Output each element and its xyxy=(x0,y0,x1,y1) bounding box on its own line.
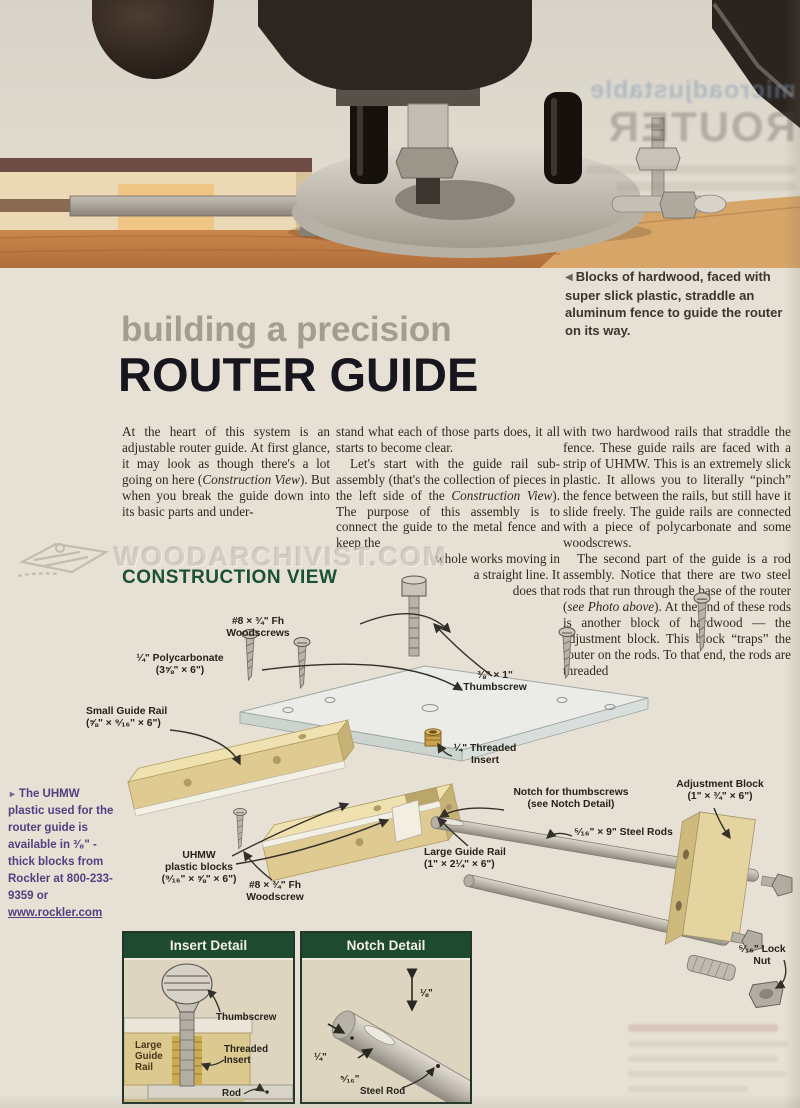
label-notch: Notch for thumbscrews (see Notch Detail) xyxy=(492,787,650,811)
insert-label-thumbscrew: Thumbscrew xyxy=(216,1012,292,1023)
label-small-guide-rail: Small Guide Rail (⅝" × ⁹⁄₁₆" × 6") xyxy=(86,706,216,730)
bleedthrough-textline xyxy=(628,1056,778,1062)
bleedthrough-heading xyxy=(628,1024,778,1032)
paragraph-italic: Construction View xyxy=(202,472,300,487)
sidebar-note: ►The UHMW plastic used for the router gu… xyxy=(8,786,114,922)
page-bleedthrough-bottom xyxy=(628,1024,793,1101)
magazine-page: microadjustable ROUTER ◀Blocks of hardwo… xyxy=(0,0,800,1108)
notch-detail-box: Notch Detail xyxy=(300,931,472,1104)
label-woodscrews: #8 × ¾" Fh Woodscrews xyxy=(192,616,324,640)
notch-detail-diagram: ⅛" ¼" ⁵⁄₁₆" Steel Rod xyxy=(302,960,470,1102)
page-title: ROUTER GUIDE xyxy=(118,347,478,402)
router-photo: microadjustable ROUTER xyxy=(0,0,800,268)
paragraph-italic: Construction View xyxy=(451,488,552,503)
label-woodscrew: #8 × ¾" Fh Woodscrew xyxy=(226,880,324,904)
notch-label-steel-rod: Steel Rod xyxy=(360,1086,420,1097)
small-guide-rail xyxy=(126,720,359,816)
bleedthrough-textline xyxy=(628,1086,748,1092)
notch-detail-title: Notch Detail xyxy=(302,933,470,960)
title-kicker: building a precision xyxy=(121,310,452,350)
sidebar-arrow-icon: ► xyxy=(8,789,17,799)
insert-detail-title: Insert Detail xyxy=(124,933,293,960)
label-lock-nut: ⁵⁄₁₆" Lock Nut xyxy=(730,944,794,968)
photo-caption: ◀Blocks of hardwood, faced with super sl… xyxy=(565,268,793,339)
label-polycarbonate: ¼" Polycarbonate (3⅝" × 6") xyxy=(96,653,264,677)
insert-detail-art xyxy=(124,960,293,1102)
paragraph: At the heart of this system is an adjust… xyxy=(122,424,330,519)
label-adjustment-block: Adjustment Block (1" × ¾" × 6") xyxy=(662,779,778,803)
paragraph: with two hardwood rails that straddle th… xyxy=(563,424,791,551)
photo-caption-text: Blocks of hardwood, faced with super sli… xyxy=(565,269,782,338)
notch-dim-eighth: ⅛" xyxy=(420,988,433,999)
hardwood-block xyxy=(0,158,312,230)
paragraph: stand what each of those parts does, it … xyxy=(336,424,560,456)
insert-label-rod: Rod xyxy=(222,1088,252,1099)
paragraph: Let's start with the guide rail sub-asse… xyxy=(336,456,560,551)
bleedthrough-textline xyxy=(628,1071,786,1077)
label-steel-rods: ⁵⁄₁₆" × 9" Steel Rods xyxy=(574,827,696,839)
label-threaded-insert: ¼" Threaded Insert xyxy=(437,743,533,767)
insert-detail-diagram: Thumbscrew Large Guide Rail Threaded Ins… xyxy=(124,960,293,1102)
sidebar-text: The UHMW plastic used for the router gui… xyxy=(8,788,113,902)
caption-arrow-icon: ◀ xyxy=(565,272,573,283)
rockler-link[interactable]: www.rockler.com xyxy=(8,907,102,919)
bleedthrough-textline xyxy=(628,1041,788,1047)
notch-dim-sixteenth: ⁵⁄₁₆" xyxy=(340,1074,359,1085)
router-photo-illustration xyxy=(0,0,800,268)
insert-label-rail: Large Guide Rail xyxy=(135,1040,175,1073)
notch-detail-art xyxy=(302,960,470,1102)
insert-label-insert: Threaded Insert xyxy=(224,1044,288,1066)
notch-dim-quarter: ¼" xyxy=(314,1052,327,1063)
uhmw-plastic-block xyxy=(392,800,422,842)
label-thumbscrew: ⅜" × 1" Thumbscrew xyxy=(443,670,547,694)
rod-bar xyxy=(148,1085,293,1099)
label-large-guide-rail: Large Guide Rail (1" × 2¼" × 6") xyxy=(424,847,528,871)
article-column-1: At the heart of this system is an adjust… xyxy=(122,424,330,519)
insert-detail-box: Insert Detail xyxy=(122,931,295,1104)
